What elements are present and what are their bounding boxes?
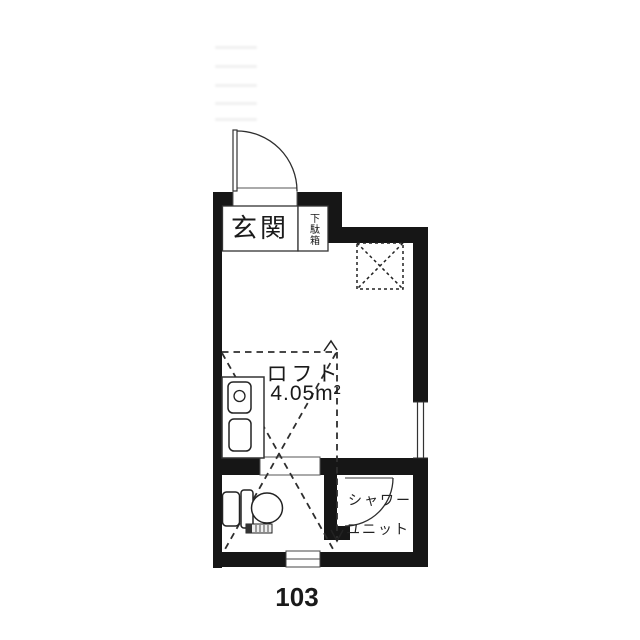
wall-right [413, 227, 428, 558]
toilet-paper-holder [246, 524, 272, 533]
entry-threshold [233, 188, 297, 206]
shower-unit-label-line2: ユニット [345, 519, 411, 539]
entry-door-arc [237, 131, 297, 191]
toilet [223, 490, 283, 533]
counter-basin [229, 419, 251, 451]
toilet-bowl [252, 493, 283, 523]
window-right [413, 402, 428, 458]
entry-door-leaf [233, 130, 237, 191]
shower-unit-label-line1: シャワー [347, 490, 413, 510]
doorway-threshold [260, 457, 320, 475]
wall-divider [324, 475, 337, 528]
loft-arrow-up [324, 341, 337, 351]
shoe-cabinet-label: 下駄箱 [298, 208, 328, 250]
window-bottom [286, 551, 320, 567]
void-x-mark [357, 243, 403, 289]
toilet-tank [223, 492, 240, 526]
floor-plan: 玄関 下駄箱 ロフト 4.05m² シャワー ユニット 103 [0, 0, 640, 640]
entry-door-swing [233, 130, 297, 191]
loft-area-label: 4.05m² [248, 382, 364, 406]
wall-left [213, 192, 222, 568]
unit-number: 103 [247, 582, 347, 613]
entrance-label: 玄関 [222, 206, 298, 251]
floor-plan-svg [0, 0, 640, 640]
